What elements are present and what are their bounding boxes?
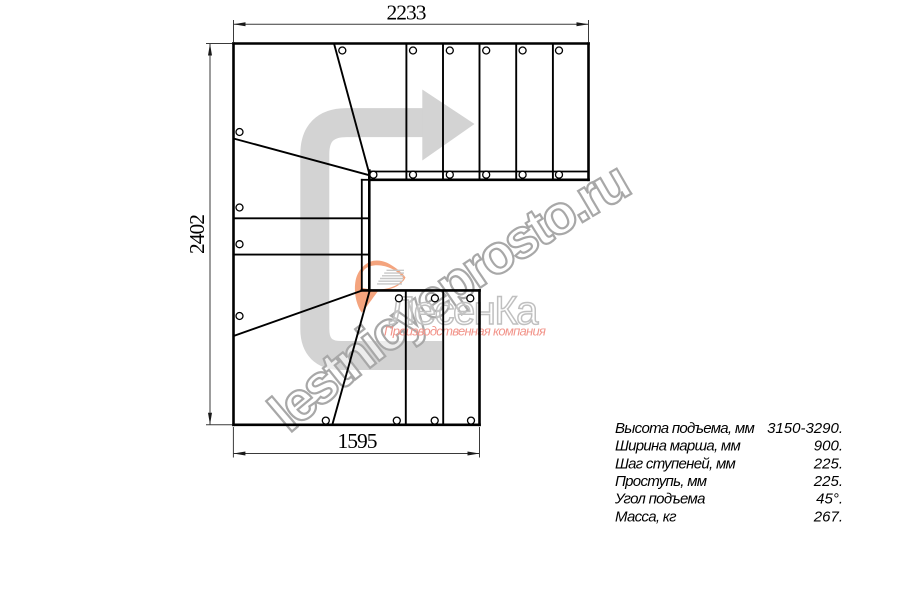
svg-text:45°.: 45°. — [816, 491, 843, 508]
svg-text:Масса, кг: Масса, кг — [615, 508, 677, 525]
svg-text:225.: 225. — [813, 455, 843, 472]
svg-text:900.: 900. — [814, 438, 843, 455]
svg-text:225.: 225. — [813, 473, 843, 490]
svg-text:267.: 267. — [813, 508, 843, 525]
svg-text:Ширина марша, мм: Ширина марша, мм — [615, 438, 740, 455]
svg-text:Высота подъема, мм: Высота подъема, мм — [615, 420, 754, 437]
svg-text:Шаг ступеней, мм: Шаг ступеней, мм — [615, 455, 736, 472]
svg-text:1595: 1595 — [338, 429, 377, 453]
svg-text:Проступь, мм: Проступь, мм — [615, 473, 707, 490]
svg-text:Угол подъема: Угол подъема — [614, 491, 705, 508]
svg-text:Производственная компания: Производственная компания — [384, 324, 546, 339]
svg-text:3150-3290.: 3150-3290. — [767, 420, 843, 437]
svg-text:2233: 2233 — [387, 1, 426, 25]
svg-text:2402: 2402 — [185, 215, 209, 254]
